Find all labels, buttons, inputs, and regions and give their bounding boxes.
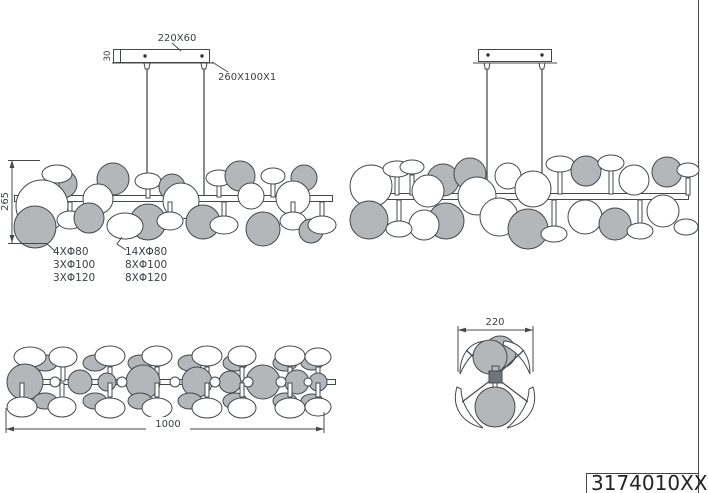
disc <box>276 377 286 387</box>
disc-stem <box>291 202 295 213</box>
depth-arrow-left <box>458 328 466 333</box>
note-right-line3: 8XΦ120 <box>125 272 167 284</box>
disc <box>142 398 172 418</box>
perspective-discs <box>350 155 699 249</box>
disc <box>95 346 125 366</box>
note-left-line2: 3XΦ100 <box>53 259 95 271</box>
disc <box>74 203 104 233</box>
disc <box>14 347 46 367</box>
disc <box>627 223 653 239</box>
wire-connector-left <box>144 63 150 69</box>
disc <box>515 171 551 207</box>
disc <box>95 398 125 418</box>
disc-stem <box>20 383 24 397</box>
fixture-depth-label: 220 <box>485 317 504 328</box>
perspective-view <box>350 50 699 250</box>
front-view: 220X60 30 260X100X1 265 4XΦ80 3XΦ100 3XΦ… <box>0 33 336 284</box>
disc <box>412 175 444 207</box>
height-arrow-bottom <box>10 235 15 243</box>
fixture-height-label: 265 <box>0 192 11 211</box>
disc <box>117 377 127 387</box>
disc <box>275 398 305 418</box>
disc <box>7 397 37 417</box>
disc-stem <box>288 383 292 397</box>
disc <box>48 397 76 417</box>
disc-stem <box>320 202 324 216</box>
disc <box>135 173 161 189</box>
disc <box>400 160 424 174</box>
disc-stem <box>609 171 613 194</box>
front-discs <box>14 161 336 248</box>
disc <box>308 216 336 234</box>
note-right-line1: 14XΦ80 <box>125 246 167 258</box>
length-arrow-right <box>316 427 324 432</box>
disc <box>647 195 679 227</box>
top-view: 1000 <box>6 346 336 433</box>
disc-stem <box>558 172 562 194</box>
disc-stem <box>61 367 65 381</box>
canopy-screw-right <box>540 53 543 56</box>
disc <box>68 370 92 394</box>
note-right-line2: 8XΦ100 <box>125 259 167 271</box>
disc <box>305 398 331 416</box>
length-arrow-left <box>6 427 14 432</box>
title-block: 3174010XX <box>586 471 708 493</box>
disc <box>599 208 631 240</box>
disc <box>98 373 116 391</box>
disc <box>541 226 567 242</box>
disc <box>50 377 60 387</box>
canopy-size-label: 220X60 <box>158 33 197 44</box>
disc <box>228 346 256 366</box>
disc <box>350 201 388 239</box>
disc-stem <box>240 383 244 397</box>
disc <box>619 165 649 195</box>
canopy-screw-left <box>486 53 489 56</box>
disc <box>192 398 222 418</box>
disc <box>246 212 280 246</box>
fixture-length-label: 1000 <box>155 419 180 430</box>
disc <box>568 200 602 234</box>
disc-stem <box>686 178 690 195</box>
canopy-screw-left <box>143 54 146 57</box>
disc <box>674 219 698 235</box>
disc <box>571 156 601 186</box>
wire-connector-right <box>201 63 207 69</box>
disc <box>210 377 220 387</box>
disc-stem <box>397 200 401 221</box>
disc <box>192 346 222 366</box>
disc <box>304 378 312 386</box>
depth-arrow-right <box>525 328 533 333</box>
disc <box>386 221 412 237</box>
canopy-body <box>121 50 210 63</box>
disc-stem <box>552 200 556 227</box>
plate-size-leader <box>212 62 228 72</box>
canopy-end-cap <box>114 50 121 63</box>
disc <box>598 155 624 171</box>
disc <box>228 398 256 418</box>
disc <box>142 346 172 366</box>
chandelier-technical-drawing: 220X60 30 260X100X1 265 4XΦ80 3XΦ100 3XΦ… <box>0 0 708 493</box>
disc-stem <box>395 177 399 195</box>
disc <box>473 340 507 374</box>
disc-stem <box>60 383 64 397</box>
end-view: 220 <box>455 317 534 428</box>
disc-stem <box>168 202 172 213</box>
disc <box>305 348 331 366</box>
disc <box>475 387 515 427</box>
disc-stem <box>222 202 226 217</box>
disc-stem <box>638 200 642 225</box>
disc-stem <box>155 383 159 397</box>
disc-stem <box>316 383 320 397</box>
disc <box>107 213 143 239</box>
disc <box>677 163 699 177</box>
disc <box>14 206 56 248</box>
disc <box>508 209 548 249</box>
disc <box>170 377 180 387</box>
disc <box>157 212 183 230</box>
drawing-sheet: 220X60 30 260X100X1 265 4XΦ80 3XΦ100 3XΦ… <box>0 0 708 493</box>
note-left-line3: 3XΦ120 <box>53 272 95 284</box>
disc-stem <box>205 383 209 397</box>
note-left-line1: 4XΦ80 <box>53 246 89 258</box>
disc <box>210 216 238 234</box>
part-number: 3174010XX <box>591 471 708 493</box>
disc <box>219 371 241 393</box>
disc <box>261 168 285 184</box>
height-arrow-top <box>10 160 15 168</box>
disc <box>275 346 305 366</box>
wire-connector-left <box>484 63 490 69</box>
canopy-height-label: 30 <box>103 51 113 62</box>
disc <box>546 156 574 172</box>
canopy-screw-right <box>200 54 203 57</box>
end-discs <box>455 336 534 428</box>
disc <box>409 210 439 240</box>
disc <box>238 183 264 209</box>
disc-stem <box>108 383 112 397</box>
disc <box>49 347 77 367</box>
hub <box>489 371 502 383</box>
plate-size-label: 260X100X1 <box>218 72 276 83</box>
wire-connector-right <box>539 63 545 69</box>
